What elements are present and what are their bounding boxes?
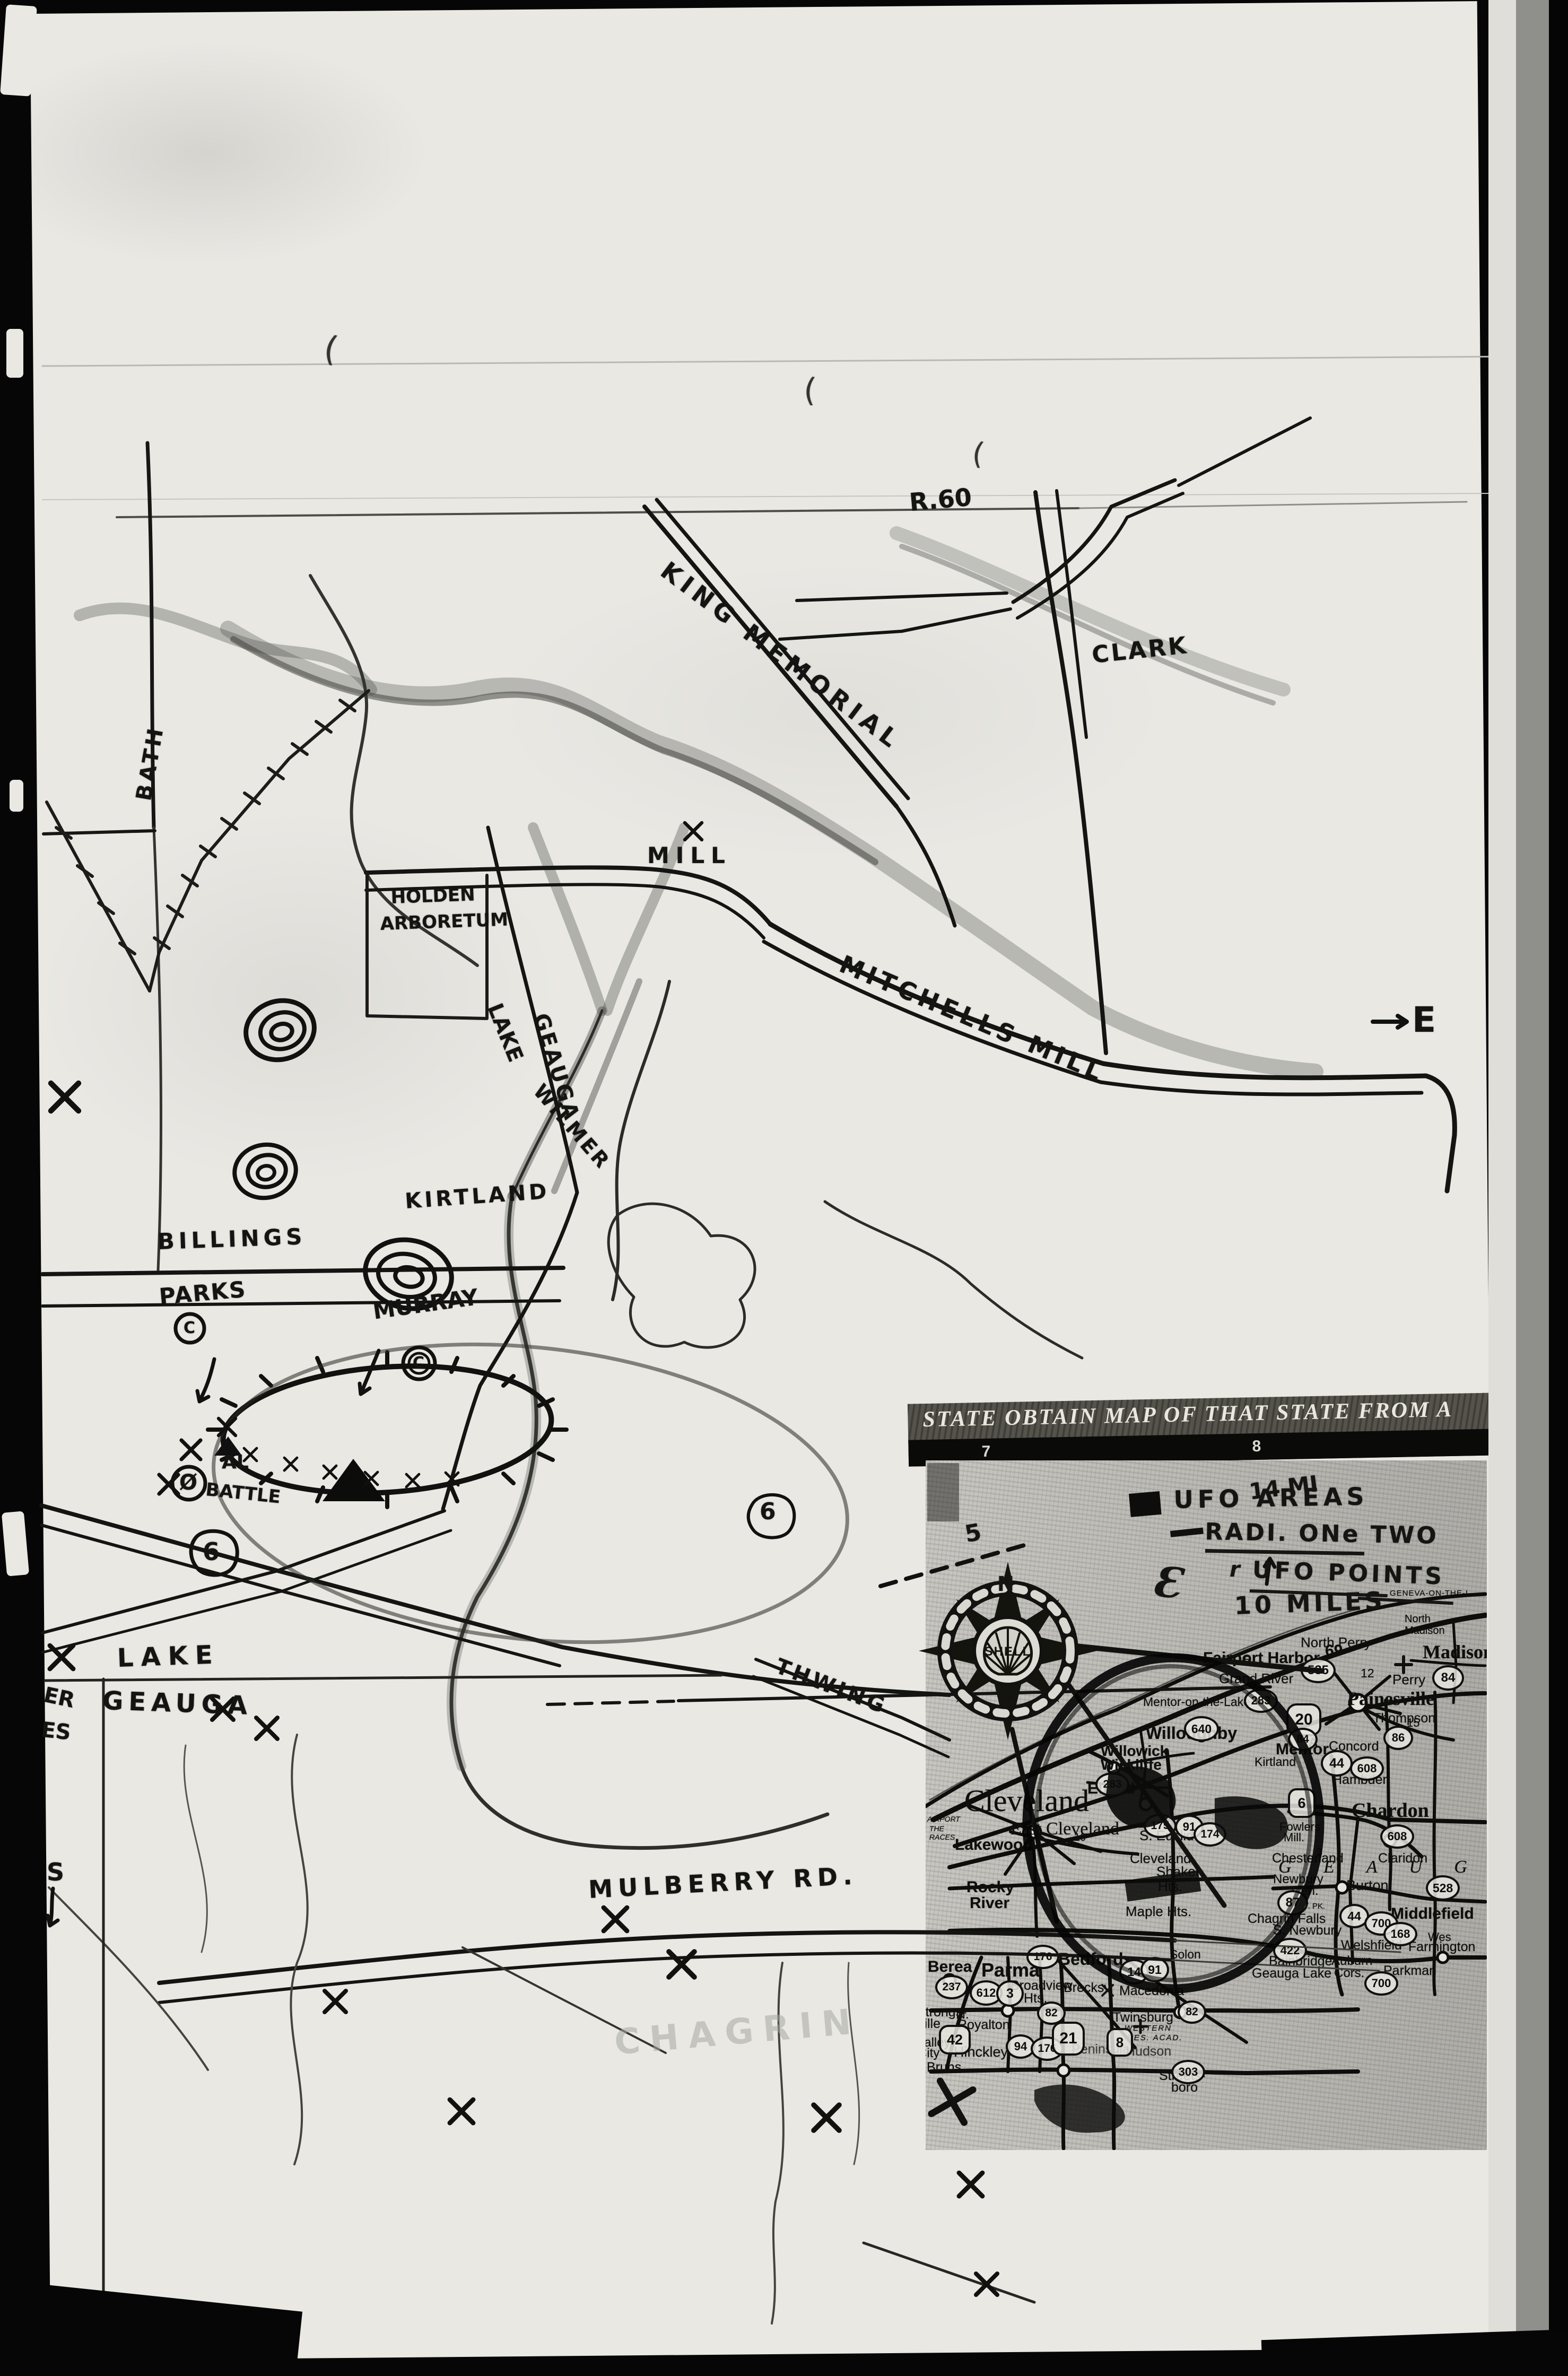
spiral-mark-3 xyxy=(359,1232,458,1316)
hand-ink-annotations: SHELL xyxy=(0,0,1568,2376)
x-marks xyxy=(50,823,1113,2295)
spiral-mark-1 xyxy=(239,993,321,1067)
paper-edge-bright xyxy=(1488,0,1516,2376)
murray-circled-c-inner xyxy=(409,1353,429,1373)
large-filled-triangle xyxy=(323,1459,385,1501)
paper-edge-shadow xyxy=(1516,0,1549,2376)
legend-underline-2 xyxy=(1250,1589,1388,1597)
legend-ufo-area-swatch xyxy=(1129,1491,1162,1517)
scanned-map-page: STATE OBTAIN MAP OF THAT STATE FROM A 7 … xyxy=(0,0,1568,2376)
scan-background-right xyxy=(1549,0,1568,2376)
legend-underline-1 xyxy=(1205,1549,1364,1555)
legend-underline-3 xyxy=(1358,1597,1453,1605)
ufo-area-ink-blobs xyxy=(927,1463,1288,2133)
shell-compass-rose: SHELL xyxy=(904,1547,1111,1754)
legend-radius-dash xyxy=(1170,1528,1204,1537)
hand-route6-shield-a xyxy=(191,1531,237,1575)
church-cross-madison xyxy=(1396,1657,1412,1673)
church-cross-twinsburg xyxy=(1134,2020,1147,2033)
hand-route6-shield-b xyxy=(748,1495,795,1538)
large-pencil-loop xyxy=(199,1315,863,1672)
hatched-ellipse xyxy=(208,1352,567,1507)
parks-circled-c xyxy=(176,1314,204,1343)
shell-logo: SHELL xyxy=(984,1627,1031,1674)
shell-logo-text: SHELL xyxy=(985,1644,1032,1659)
spiral-mark-2 xyxy=(230,1140,300,1203)
